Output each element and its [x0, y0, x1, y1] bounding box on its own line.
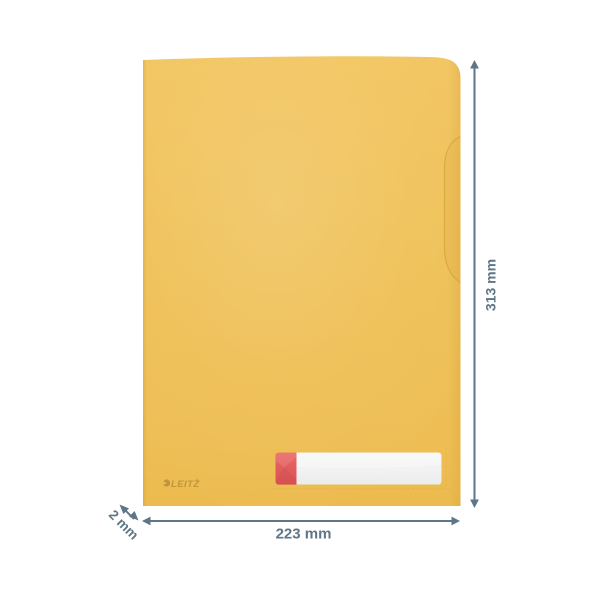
svg-text:®: ®	[196, 478, 199, 483]
svg-text:313 mm: 313 mm	[483, 259, 499, 311]
svg-text:223 mm: 223 mm	[276, 526, 332, 543]
